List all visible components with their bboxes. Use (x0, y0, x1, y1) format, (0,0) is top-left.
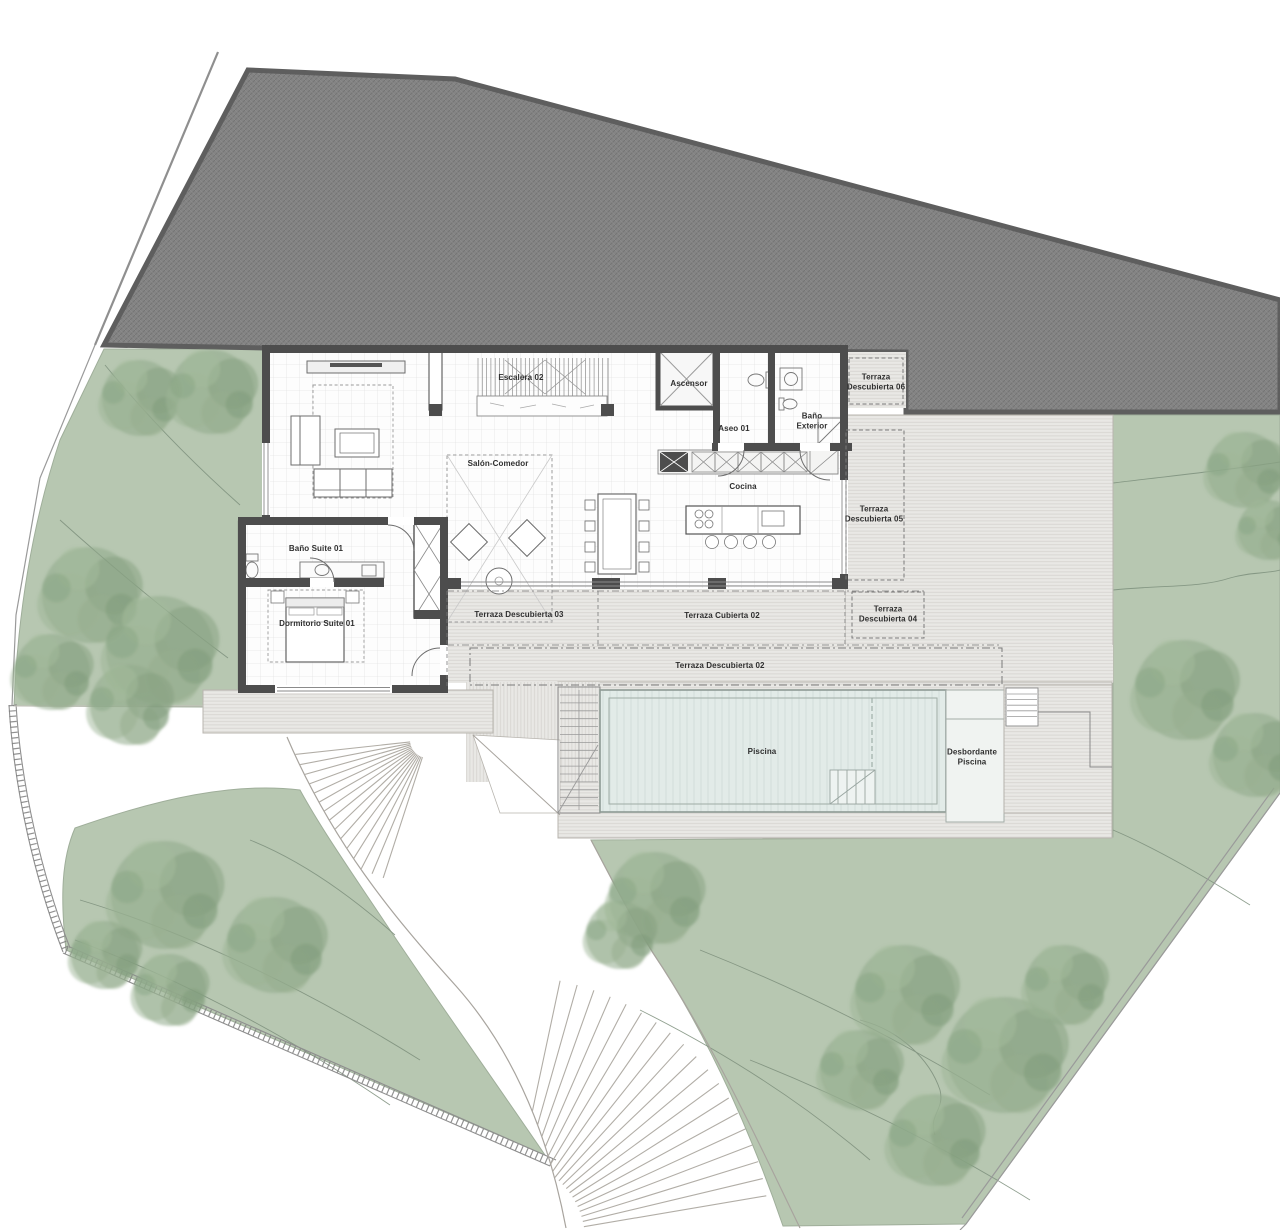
terrace-band-02 (447, 645, 1113, 683)
pool-overflow (946, 690, 1004, 822)
elevator (658, 350, 715, 408)
terrace-notch-06 (845, 352, 906, 408)
terrace-band-south (445, 589, 845, 645)
pool-area (558, 685, 1112, 822)
closet-shaft (414, 522, 444, 619)
site-plan-drawing (0, 0, 1280, 1230)
floor-plan: Escalera 02AscensorAseo 01Baño ExteriorS… (0, 0, 1280, 1230)
wing-deck (203, 690, 493, 733)
pool-steps (830, 770, 875, 804)
terrace-right (845, 415, 1113, 682)
pool (600, 690, 946, 812)
